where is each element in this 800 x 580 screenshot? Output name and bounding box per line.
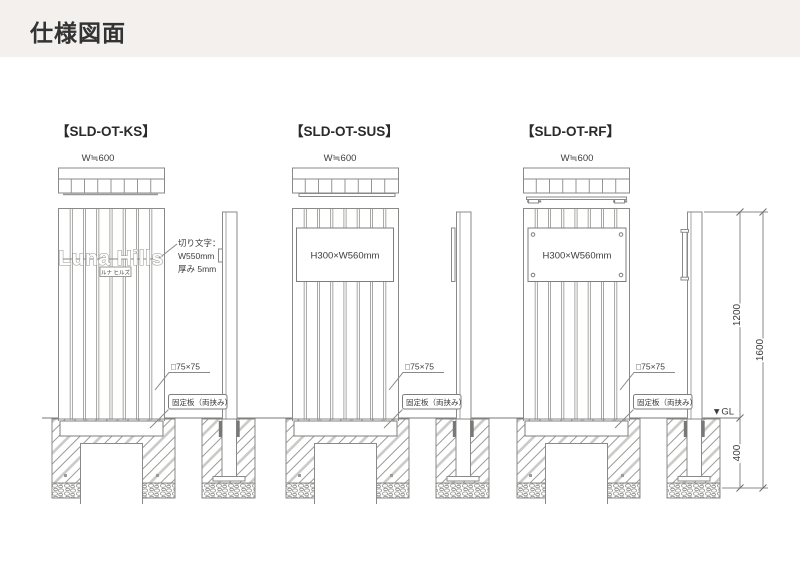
side-foundation bbox=[436, 419, 489, 498]
fixing-plate-label: 固定板（両挟み） bbox=[172, 397, 232, 407]
front-foundation bbox=[286, 419, 409, 504]
side-view-letter-edge bbox=[219, 249, 223, 262]
plate-size-label: H300×W560mm bbox=[311, 251, 380, 262]
side-foundation bbox=[202, 419, 255, 498]
drawing-sld-ot-sus: 【SLD-OT-SUS】 W≒600 H300×W560mm □75×75 固定… bbox=[286, 124, 489, 504]
plan-view-base-rail bbox=[527, 197, 627, 200]
drawing-title: 【SLD-OT-KS】 bbox=[56, 124, 156, 139]
plan-view-feet bbox=[527, 200, 627, 204]
side-view-plate-bracket bbox=[681, 230, 689, 281]
front-foundation bbox=[52, 419, 175, 504]
drawing-title: 【SLD-OT-SUS】 bbox=[290, 124, 399, 139]
plan-view bbox=[59, 168, 165, 193]
side-view bbox=[457, 212, 472, 421]
side-view-plate-edge bbox=[452, 228, 456, 282]
plate-size-label: H300×W560mm bbox=[543, 251, 612, 262]
width-dimension-label: W≒600 bbox=[561, 153, 594, 164]
dim-below-ground: 400 bbox=[732, 444, 743, 461]
drawing-sld-ot-rf: 【SLD-OT-RF】 W≒600 bbox=[517, 124, 720, 504]
front-foundation bbox=[517, 419, 640, 504]
ground-level-label: ▼GL bbox=[712, 407, 734, 418]
width-dimension-label: W≒600 bbox=[324, 153, 357, 164]
plan-view-plate-edge bbox=[299, 194, 395, 197]
post-size-label: □75×75 bbox=[405, 362, 434, 372]
post-size-label: □75×75 bbox=[171, 362, 200, 372]
side-view bbox=[223, 212, 238, 421]
side-foundation bbox=[667, 419, 720, 498]
side-view bbox=[688, 212, 703, 421]
plan-view bbox=[524, 168, 630, 193]
front-view bbox=[59, 209, 165, 422]
fixing-plate-label: 固定板（両挟み） bbox=[637, 397, 697, 407]
note-line-2: W550mm bbox=[178, 251, 214, 261]
width-dimension-label: W≒600 bbox=[82, 153, 115, 164]
technical-drawing-canvas: 【SLD-OT-KS】 W≒600 Luna Hills ルナ ヒルズ 切り文字… bbox=[0, 0, 800, 580]
spec-sheet-page: 仕様図面 bbox=[0, 0, 800, 580]
drawing-sld-ot-ks: 【SLD-OT-KS】 W≒600 Luna Hills ルナ ヒルズ 切り文字… bbox=[52, 124, 255, 504]
fixing-plate-label: 固定板（両挟み） bbox=[406, 397, 466, 407]
plan-view bbox=[293, 168, 399, 193]
drawing-title: 【SLD-OT-RF】 bbox=[521, 124, 620, 139]
post-size-label: □75×75 bbox=[636, 362, 665, 372]
note-line-3: 厚み 5mm bbox=[178, 264, 216, 274]
dim-above-ground: 1200 bbox=[732, 303, 743, 326]
sign-reading-text: ルナ ヒルズ bbox=[101, 269, 131, 277]
note-line-1: 切り文字： bbox=[178, 238, 221, 248]
dim-total-height: 1600 bbox=[755, 338, 766, 361]
